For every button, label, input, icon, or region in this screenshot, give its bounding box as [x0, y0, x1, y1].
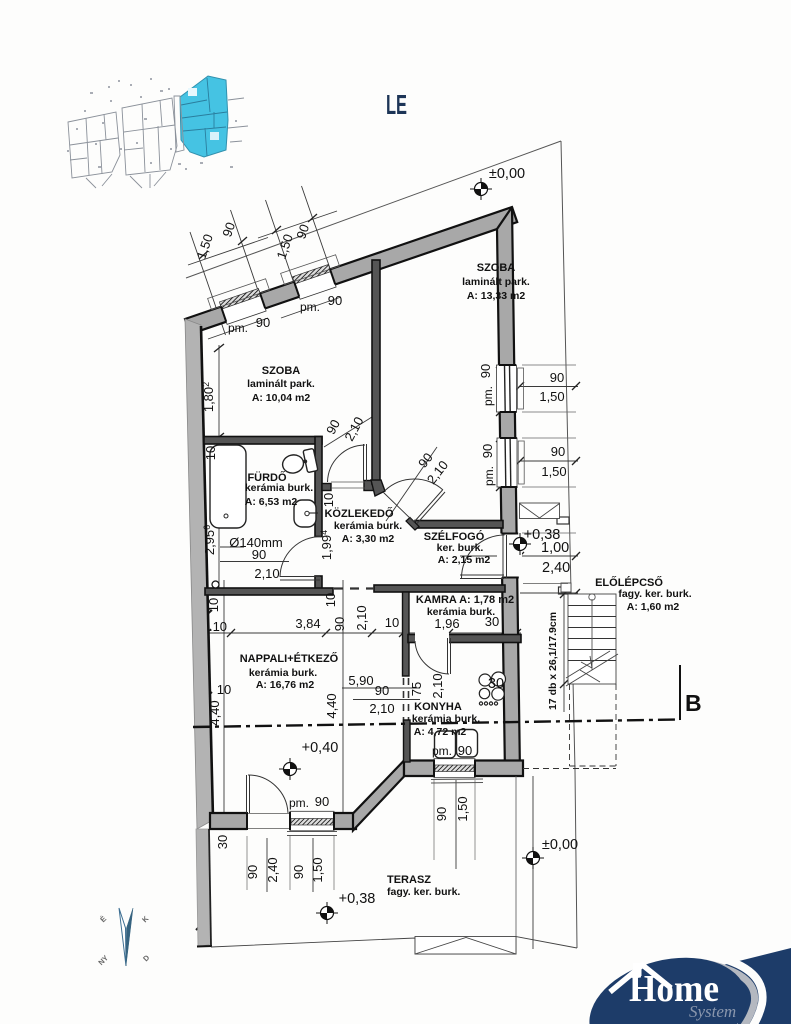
svg-text:2,10: 2,10 [369, 701, 394, 716]
svg-text:90: 90 [332, 617, 347, 631]
svg-text:10: 10 [321, 493, 336, 507]
svg-text:1,50: 1,50 [539, 389, 564, 404]
svg-text:90: 90 [480, 444, 495, 458]
svg-text:3,84: 3,84 [295, 616, 320, 631]
svg-text:10: 10 [385, 615, 399, 630]
svg-text:±0,00: ±0,00 [542, 837, 578, 853]
svg-text:2,40: 2,40 [265, 857, 280, 882]
svg-text:LE: LE [386, 89, 407, 120]
svg-text:pm.: pm. [289, 796, 309, 810]
svg-text:2,10: 2,10 [354, 605, 369, 630]
svg-text:5,90: 5,90 [348, 673, 373, 688]
svg-text:10: 10 [217, 682, 231, 697]
svg-text:pm.: pm. [481, 386, 495, 406]
svg-text:75: 75 [409, 682, 424, 696]
svg-text:SZOBA: SZOBA [262, 365, 301, 377]
svg-text:kerámia burk.: kerámia burk. [245, 482, 313, 494]
svg-text:4,40: 4,40 [207, 700, 222, 725]
svg-text:30: 30 [485, 614, 499, 629]
svg-text:KONYHA: KONYHA [414, 701, 462, 713]
svg-text:A: 6,53 m2: A: 6,53 m2 [245, 496, 298, 508]
svg-text:90: 90 [550, 370, 564, 385]
svg-text:A: 2,15 m2: A: 2,15 m2 [438, 554, 491, 566]
svg-text:fagy. ker. burk.: fagy. ker. burk. [618, 588, 691, 600]
svg-text:NAPPALI+ÉTKEZŐ: NAPPALI+ÉTKEZŐ [240, 652, 339, 665]
svg-text:B: B [685, 690, 702, 716]
svg-text:A: 10,04 m2: A: 10,04 m2 [252, 392, 311, 404]
svg-text:pm.: pm. [228, 321, 248, 335]
svg-text:1,00: 1,00 [541, 540, 569, 556]
svg-text:A: 3,30 m2: A: 3,30 m2 [342, 533, 395, 545]
svg-text:pm.: pm. [482, 466, 496, 486]
svg-text:90: 90 [458, 743, 472, 758]
svg-text:90: 90 [291, 865, 306, 879]
svg-text:90: 90 [245, 865, 260, 879]
svg-text:90: 90 [256, 315, 270, 330]
svg-text:1,50: 1,50 [455, 796, 470, 821]
svg-text:±0,00: ±0,00 [489, 166, 525, 182]
svg-text:ker. burk.: ker. burk. [437, 542, 484, 554]
svg-text:KAMRA A: 1,78 m2: KAMRA A: 1,78 m2 [416, 594, 514, 606]
svg-text:1,50: 1,50 [310, 857, 325, 882]
svg-text:90: 90 [375, 683, 389, 698]
svg-text:.10: .10 [209, 619, 227, 634]
svg-text:30: 30 [215, 835, 230, 849]
svg-text:1,96: 1,96 [434, 616, 459, 631]
svg-text:fagy. ker. burk.: fagy. ker. burk. [387, 886, 460, 898]
svg-text:90: 90 [434, 807, 449, 821]
svg-text:4,40: 4,40 [324, 693, 339, 718]
svg-text:2,10: 2,10 [254, 566, 279, 581]
svg-text:A: 16,76 m2: A: 16,76 m2 [256, 679, 315, 691]
svg-text:2,40: 2,40 [542, 560, 570, 576]
svg-text:kerámia burk.: kerámia burk. [412, 713, 480, 725]
svg-text:KÖZLEKEDŐ: KÖZLEKEDŐ [324, 507, 394, 520]
svg-text:90: 90 [252, 547, 266, 562]
svg-text:SZOBA: SZOBA [477, 262, 516, 274]
svg-text:10: 10 [323, 593, 338, 607]
svg-text:1,50: 1,50 [541, 464, 566, 479]
svg-text:30: 30 [488, 676, 504, 692]
svg-text:System: System [689, 1002, 736, 1021]
svg-text:laminált park.: laminált park. [247, 378, 315, 390]
svg-text:laminált park.: laminált park. [462, 276, 530, 288]
svg-text:17 db x 26,1/17.9cm: 17 db x 26,1/17.9cm [547, 612, 559, 710]
svg-text:A: 13,33 m2: A: 13,33 m2 [467, 290, 526, 302]
svg-text:90: 90 [315, 794, 329, 809]
svg-text:90: 90 [551, 444, 565, 459]
svg-text:10: 10 [203, 446, 218, 460]
svg-text:kerámia burk.: kerámia burk. [334, 520, 402, 532]
svg-text:90: 90 [328, 293, 342, 308]
svg-text:pm.: pm. [432, 744, 452, 758]
svg-text:90: 90 [478, 364, 493, 378]
svg-text:10: 10 [206, 598, 221, 612]
svg-text:pm.: pm. [300, 300, 320, 314]
svg-text:A: 1,60 m2: A: 1,60 m2 [627, 601, 680, 613]
svg-text:2,10: 2,10 [430, 673, 445, 698]
svg-text:TERASZ: TERASZ [387, 874, 431, 886]
svg-text:A: 4,72 m2: A: 4,72 m2 [414, 726, 467, 738]
svg-text:+0,38: +0,38 [339, 891, 376, 907]
svg-text:+0,40: +0,40 [302, 740, 339, 756]
svg-text:kerámia burk.: kerámia burk. [249, 667, 317, 679]
